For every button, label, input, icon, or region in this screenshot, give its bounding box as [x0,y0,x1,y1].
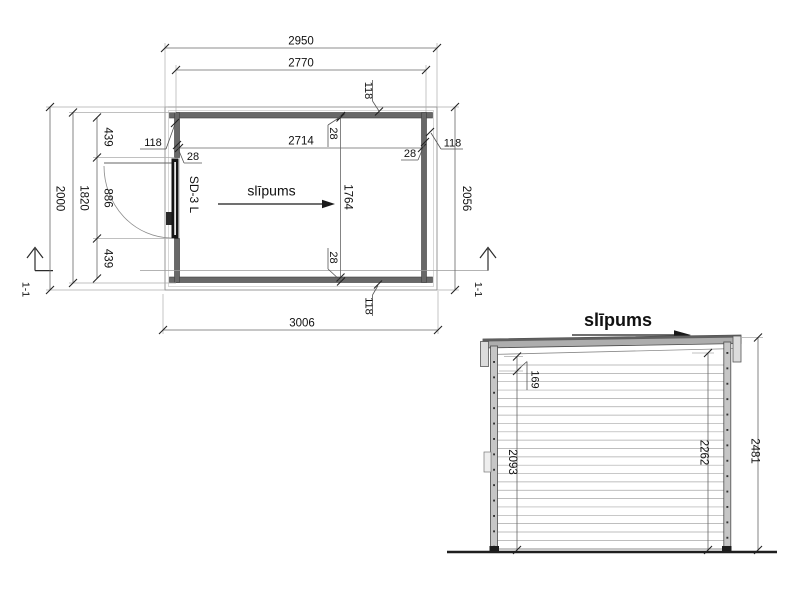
floor-plan: 1-1 1-1 slīpums SD-3 L [20,36,497,335]
dim-439-top-label: 439 [102,127,114,146]
dim-1820-label: 1820 [78,185,90,211]
plan-wall-left-lower [175,239,180,283]
elevation-fascia-left [481,342,489,367]
elevation-title: slīpums [584,310,652,330]
elevation-fascia-right [733,336,741,362]
callout-118-right: 118 [444,138,462,150]
dim-2714-label: 2714 [288,136,314,148]
dim-169-label: 169 [529,370,541,388]
elevation-wall-planks [498,365,724,540]
dim-2093-label: 2093 [506,449,518,475]
dim-2000-label: 2000 [54,186,66,212]
plan-door [104,159,179,239]
plan-slope-arrowhead-icon [322,200,335,208]
section-marker-right: 1-1 [472,248,496,298]
dim-2950-label: 2950 [288,36,314,48]
elevation-roof-underside [490,349,737,355]
dim-2770-label: 2770 [288,58,314,70]
dim-2481-label: 2481 [749,438,761,464]
callout-118-left: 118 [144,137,162,149]
plan-slope-label: slīpums [247,183,295,199]
plan-wall-top [170,113,433,119]
dim-1764-label: 1764 [342,184,354,210]
callout-28-top-center: 28 [327,127,339,139]
callout-28-top-left: 28 [187,151,199,163]
callout-28-bottom-center: 28 [327,251,339,263]
dim-886-label: 886 [102,188,114,207]
shed-drawing: 1-1 1-1 slīpums SD-3 L [0,0,800,600]
door-handle [166,212,172,225]
dim-2056-label: 2056 [460,186,472,212]
elevation-post-bracket [484,452,491,472]
dim-2262-label: 2262 [698,440,710,466]
section-label-right: 1-1 [472,282,484,297]
section-label-left: 1-1 [20,282,32,297]
dim-439-bottom-label: 439 [102,249,114,268]
technical-drawing-sheet: 1-1 1-1 slīpums SD-3 L [0,0,800,600]
elevation-slope-annotation: slīpums [572,310,691,340]
plan-door-label: SD-3 L [187,176,201,214]
plan-slope-annotation: slīpums [218,183,335,209]
plan-wall-right [422,113,427,283]
callout-28-top-right: 28 [404,148,416,160]
door-leaf-slit [174,162,176,235]
plan-wall-bottom [170,277,433,283]
dimension-ticks [46,44,762,554]
plan-roof-outline [165,107,437,290]
dim-3006-label: 3006 [289,318,315,330]
elevation-view: slīpums 169 20 [447,310,777,552]
